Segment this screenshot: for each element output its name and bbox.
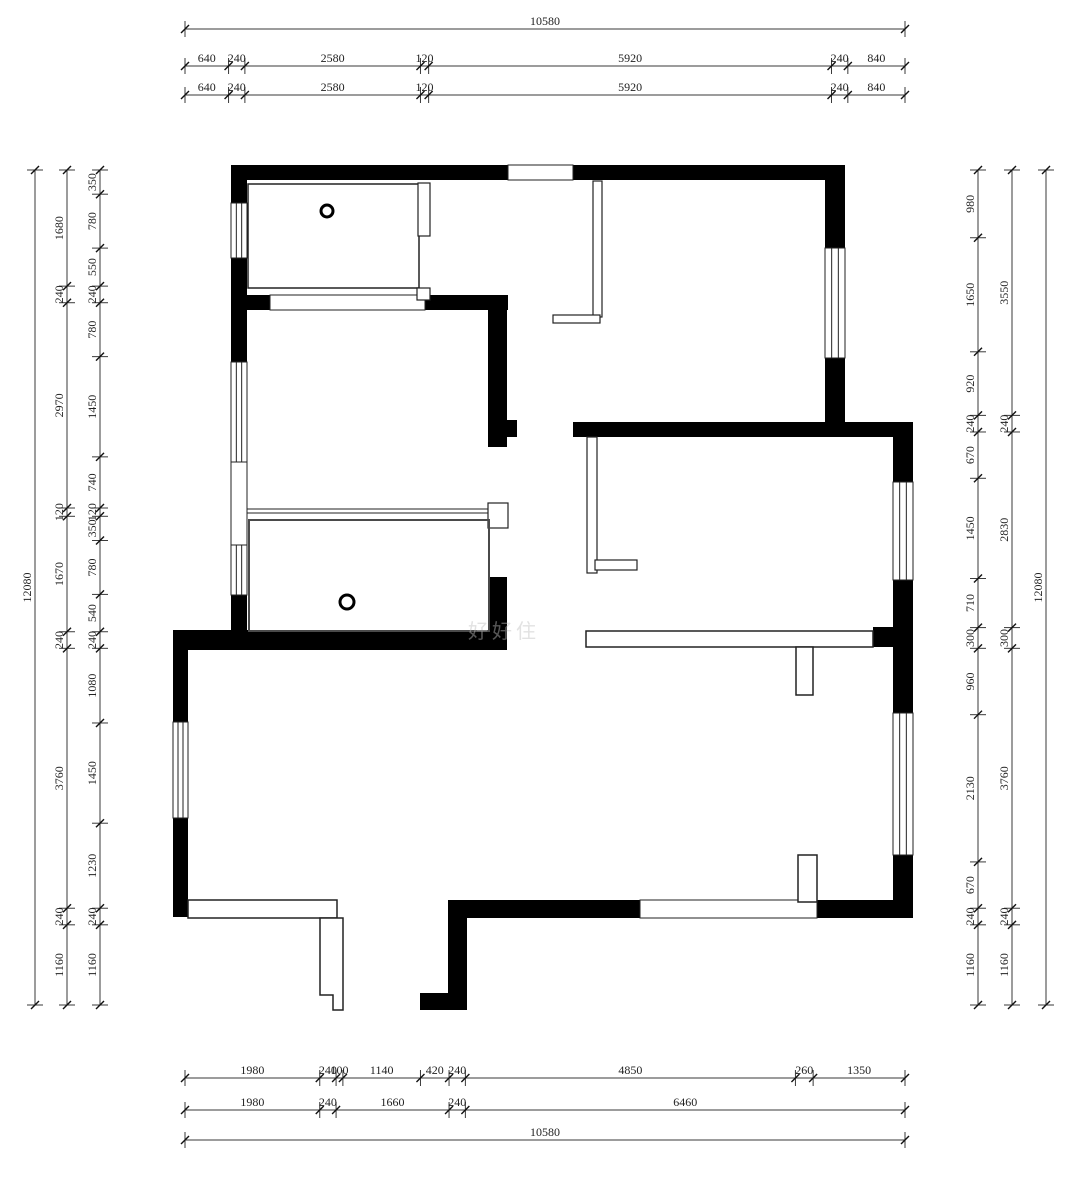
watermark: 好好住 bbox=[468, 620, 540, 643]
wall-segment bbox=[173, 818, 188, 917]
dimension-label: 2130 bbox=[963, 776, 977, 800]
dimension-label: 120 bbox=[85, 503, 99, 521]
wall-segment bbox=[893, 437, 913, 482]
wall-segment bbox=[173, 630, 507, 650]
thin-partition-outline bbox=[248, 184, 419, 288]
dimension-label: 12080 bbox=[1031, 573, 1045, 603]
wall-segment bbox=[817, 900, 913, 918]
dimension-label: 1160 bbox=[85, 953, 99, 977]
window bbox=[893, 482, 913, 580]
thin-partition-outline bbox=[320, 918, 343, 1010]
dim-chain-left-inner: 3507805502407801450740120350780540240108… bbox=[85, 166, 108, 1009]
wall-opening bbox=[640, 900, 817, 918]
window bbox=[231, 545, 247, 595]
dimension-label: 240 bbox=[52, 285, 66, 303]
thin-partition-outline bbox=[488, 503, 508, 528]
dimension-label: 2970 bbox=[52, 393, 66, 417]
dimension-label: 670 bbox=[963, 876, 977, 894]
wall-segment bbox=[573, 165, 845, 180]
dimension-label: 550 bbox=[85, 258, 99, 276]
thin-partition-outline bbox=[418, 183, 430, 236]
fixtures-layer bbox=[321, 205, 354, 609]
dimension-label: 2580 bbox=[321, 51, 345, 65]
dim-chain-right-inner: 9801650920240670145071030096021306702401… bbox=[963, 166, 986, 1009]
dimension-label: 4850 bbox=[618, 1063, 642, 1077]
dim-chain-bottom-row-2: 198024016602406460 bbox=[181, 1095, 909, 1118]
dimension-label: 1350 bbox=[847, 1063, 871, 1077]
window bbox=[231, 203, 247, 258]
thin-partition-outline bbox=[798, 855, 817, 902]
floor-plan-page: 1058064024025801205920240840640240258012… bbox=[0, 0, 1080, 1178]
dim-chain-bottom-row-1: 1980240100114042024048502601350 bbox=[181, 1063, 909, 1086]
dimension-label: 240 bbox=[85, 631, 99, 649]
thin-partition-outline bbox=[796, 647, 813, 695]
dimension-label: 1160 bbox=[963, 953, 977, 977]
drain-circle bbox=[340, 595, 354, 609]
dimension-label: 1670 bbox=[52, 562, 66, 586]
dimension-label: 240 bbox=[52, 908, 66, 926]
thin-partition-outline bbox=[553, 315, 600, 323]
dimension-label: 5920 bbox=[618, 51, 642, 65]
wall-segment bbox=[231, 165, 247, 203]
window bbox=[893, 713, 913, 855]
wall-segment bbox=[893, 580, 913, 713]
dimension-label: 1980 bbox=[240, 1095, 264, 1109]
floor-plan-svg: 1058064024025801205920240840640240258012… bbox=[0, 0, 1080, 1178]
dimension-label: 240 bbox=[963, 908, 977, 926]
dimension-label: 2580 bbox=[321, 80, 345, 94]
drain-circle bbox=[321, 205, 333, 217]
thin-partition-outline bbox=[587, 437, 597, 573]
dimension-label: 260 bbox=[795, 1063, 813, 1077]
dimension-label: 120 bbox=[416, 80, 434, 94]
dimension-label: 240 bbox=[52, 631, 66, 649]
wall-segment bbox=[507, 420, 517, 437]
dimension-label: 240 bbox=[963, 415, 977, 433]
dim-chain-left-outer: 12080 bbox=[20, 166, 43, 1009]
wall-segment bbox=[448, 900, 640, 918]
wall-opening bbox=[231, 462, 247, 545]
dimension-label: 240 bbox=[85, 908, 99, 926]
wall-segment bbox=[231, 258, 247, 362]
dimension-label: 300 bbox=[997, 629, 1011, 647]
dimension-label: 10580 bbox=[530, 14, 560, 28]
dimension-label: 120 bbox=[52, 503, 66, 521]
dimension-label: 1450 bbox=[85, 395, 99, 419]
dimension-label: 840 bbox=[867, 80, 885, 94]
dimension-label: 240 bbox=[85, 285, 99, 303]
dimension-label: 240 bbox=[448, 1095, 466, 1109]
thin-partition-outline bbox=[595, 560, 637, 570]
thin-partition-outline bbox=[593, 181, 602, 317]
dimension-label: 240 bbox=[319, 1095, 337, 1109]
dim-chain-top-row-1: 64024025801205920240840 bbox=[181, 51, 909, 74]
window bbox=[231, 362, 247, 462]
wall-segment bbox=[573, 422, 913, 437]
dimension-label: 300 bbox=[963, 629, 977, 647]
wall-segment bbox=[825, 165, 845, 248]
wall-segment bbox=[245, 295, 270, 310]
dimension-label: 3550 bbox=[997, 281, 1011, 305]
wall-segment bbox=[873, 627, 893, 647]
dimension-label: 1660 bbox=[381, 1095, 405, 1109]
dimension-label: 1980 bbox=[240, 1063, 264, 1077]
dim-chain-left-middle: 16802402970120167024037602401160 bbox=[52, 166, 75, 1009]
dimension-label: 1450 bbox=[963, 516, 977, 540]
thin-partition-outline bbox=[417, 288, 430, 300]
wall-segment bbox=[448, 918, 467, 1010]
dimension-label: 240 bbox=[997, 415, 1011, 433]
dimension-label: 1680 bbox=[52, 216, 66, 240]
openings-layer bbox=[231, 165, 817, 918]
thin-partition-outline bbox=[249, 520, 489, 631]
dimension-label: 2830 bbox=[997, 518, 1011, 542]
dimension-label: 1080 bbox=[85, 674, 99, 698]
dimension-label: 1450 bbox=[85, 761, 99, 785]
dim-chain-top-row-2: 64024025801205920240840 bbox=[181, 80, 909, 103]
wall-segment bbox=[825, 358, 845, 423]
dimension-label: 350 bbox=[85, 173, 99, 191]
dimension-label: 1140 bbox=[370, 1063, 394, 1077]
wall-opening bbox=[508, 165, 573, 180]
dimension-label: 3760 bbox=[997, 766, 1011, 790]
dimension-label: 12080 bbox=[20, 573, 34, 603]
dimension-label: 240 bbox=[997, 908, 1011, 926]
dimension-label: 780 bbox=[85, 558, 99, 576]
dimension-label: 640 bbox=[198, 80, 216, 94]
dimension-label: 640 bbox=[198, 51, 216, 65]
wall-segment bbox=[420, 993, 448, 1010]
dim-chain-bottom-overall: 10580 bbox=[181, 1125, 909, 1148]
dimension-label: 1160 bbox=[997, 953, 1011, 977]
dimension-label: 420 bbox=[426, 1063, 444, 1077]
dimension-label: 350 bbox=[85, 519, 99, 537]
dimension-label: 5920 bbox=[618, 80, 642, 94]
dimension-label: 540 bbox=[85, 604, 99, 622]
wall-opening bbox=[270, 295, 425, 310]
dimension-label: 240 bbox=[228, 80, 246, 94]
dim-chain-right-outer: 12080 bbox=[1031, 166, 1054, 1009]
dimension-label: 960 bbox=[963, 673, 977, 691]
thin-partition-outline bbox=[188, 900, 337, 918]
dimension-label: 240 bbox=[448, 1063, 466, 1077]
dimension-label: 780 bbox=[85, 212, 99, 230]
dim-chain-top-overall: 10580 bbox=[181, 14, 909, 37]
dimension-label: 980 bbox=[963, 195, 977, 213]
dimension-label: 840 bbox=[867, 51, 885, 65]
dimension-label: 3760 bbox=[52, 766, 66, 790]
dimension-label: 710 bbox=[963, 594, 977, 612]
dimension-label: 670 bbox=[963, 446, 977, 464]
thin-partition-outline bbox=[586, 631, 873, 647]
dimension-label: 1650 bbox=[963, 283, 977, 307]
wall-segment bbox=[231, 165, 508, 180]
dimension-label: 780 bbox=[85, 321, 99, 339]
dimension-label: 920 bbox=[963, 375, 977, 393]
dimension-label: 240 bbox=[831, 51, 849, 65]
wall-segment bbox=[425, 295, 508, 310]
window bbox=[173, 722, 188, 818]
dimension-label: 100 bbox=[330, 1063, 348, 1077]
dimension-label: 1160 bbox=[52, 953, 66, 977]
dim-chain-right-middle: 3550240283030037602401160 bbox=[997, 166, 1020, 1009]
dimension-label: 240 bbox=[831, 80, 849, 94]
dimension-label: 240 bbox=[228, 51, 246, 65]
wall-segment bbox=[488, 310, 507, 447]
window bbox=[825, 248, 845, 358]
dimension-label: 740 bbox=[85, 473, 99, 491]
dimension-label: 6460 bbox=[673, 1095, 697, 1109]
dimension-label: 120 bbox=[416, 51, 434, 65]
dimension-label: 10580 bbox=[530, 1125, 560, 1139]
dimension-label: 1230 bbox=[85, 854, 99, 878]
